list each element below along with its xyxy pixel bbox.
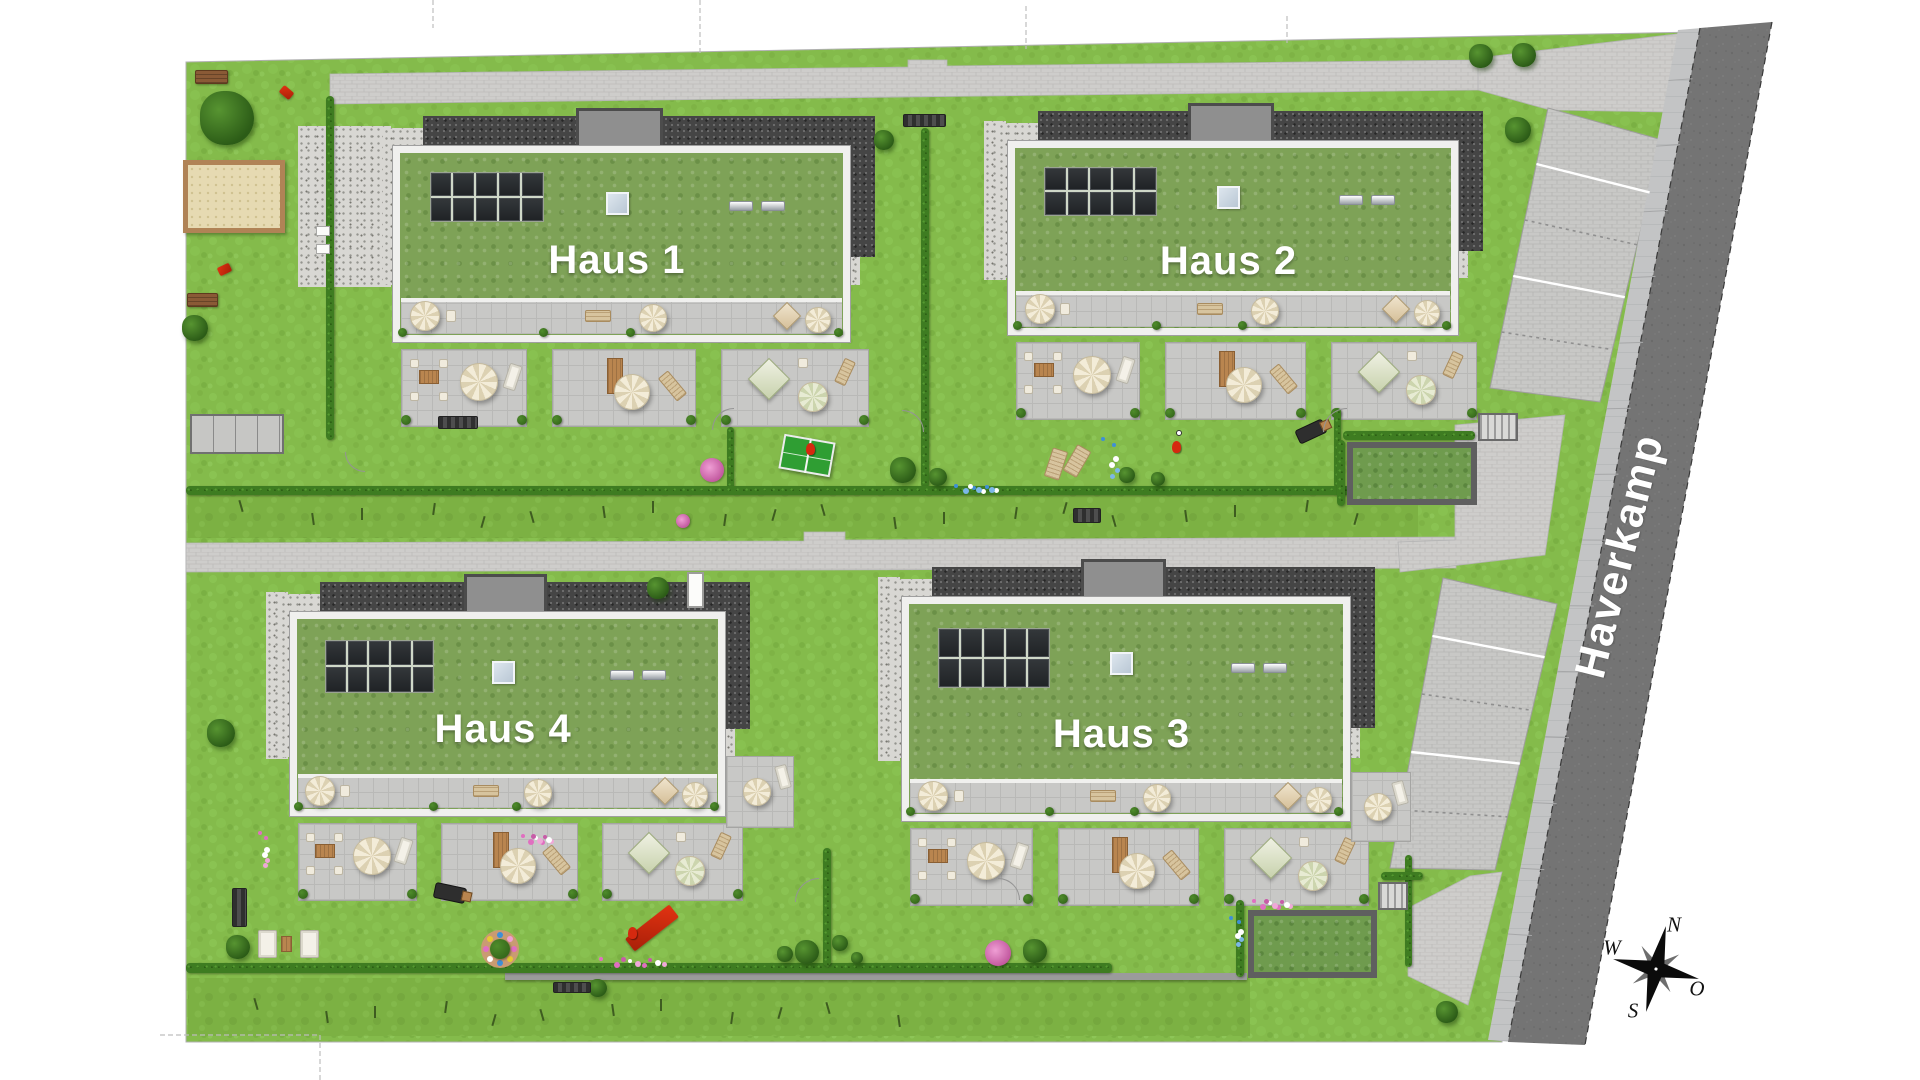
parasol-icon xyxy=(805,307,831,333)
bench xyxy=(1073,508,1101,523)
sapling-icon xyxy=(730,1012,734,1024)
sapling-icon xyxy=(529,511,534,523)
tree-icon xyxy=(890,457,916,483)
flower-icon xyxy=(1115,468,1120,473)
roof-vent xyxy=(642,670,666,680)
hedge xyxy=(921,128,929,488)
sandbox xyxy=(183,160,285,233)
flower-icon xyxy=(989,487,995,493)
toy-icon xyxy=(279,85,295,100)
tree-icon xyxy=(795,940,819,964)
flower-icon xyxy=(1284,902,1290,908)
chair-icon xyxy=(410,359,419,368)
table-icon xyxy=(928,849,948,863)
flower-icon xyxy=(507,956,513,962)
shrub-icon xyxy=(1023,894,1033,904)
gate-swing-arc xyxy=(1323,408,1347,432)
flower-bed xyxy=(257,826,266,874)
chair-icon xyxy=(1024,352,1033,361)
sapling-icon xyxy=(238,500,243,512)
tree-icon xyxy=(1469,44,1493,68)
flower-icon xyxy=(985,485,989,489)
sapling-icon xyxy=(1111,515,1116,527)
bench xyxy=(553,982,591,993)
house-gravel-band-right xyxy=(726,582,750,729)
chair-icon xyxy=(1299,837,1309,847)
roof-vent xyxy=(729,201,753,211)
parasol-icon xyxy=(675,856,705,886)
compass-south-label: S xyxy=(1628,999,1639,1024)
house-label: Haus 1 xyxy=(548,240,685,280)
flower-icon xyxy=(954,484,958,488)
sapling-icon xyxy=(602,506,606,518)
tree-icon xyxy=(929,468,947,486)
flower-icon xyxy=(265,858,270,863)
flower-icon xyxy=(511,946,517,952)
house-gravel-band-right xyxy=(1459,111,1483,251)
flower-icon xyxy=(1112,443,1116,447)
person-icon xyxy=(628,927,637,939)
hedge xyxy=(1343,431,1475,440)
flower-icon xyxy=(1109,462,1115,468)
house-gravel-band-right xyxy=(1351,567,1375,728)
flower-icon xyxy=(483,946,489,952)
gate-swing-arc xyxy=(795,878,819,902)
shrub-icon xyxy=(1016,408,1026,418)
lounger-icon xyxy=(258,930,277,958)
stairs xyxy=(1378,882,1408,910)
bin-shelter xyxy=(1248,910,1377,978)
flower-icon xyxy=(521,834,525,838)
lounger-icon xyxy=(300,930,319,958)
shrub-icon xyxy=(626,328,635,337)
chair-icon xyxy=(798,358,808,368)
sapling-icon xyxy=(325,1011,329,1023)
sapling-icon xyxy=(311,513,315,525)
chair-icon xyxy=(1060,303,1070,315)
tree-icon xyxy=(1436,1001,1458,1023)
flower-icon xyxy=(264,836,268,840)
garden-wall xyxy=(505,973,1247,980)
compass-west-label: W xyxy=(1603,936,1621,961)
chair-icon xyxy=(1407,351,1417,361)
sapling-icon xyxy=(1184,510,1188,522)
chair-icon xyxy=(1053,385,1062,394)
bench xyxy=(438,416,478,429)
bench xyxy=(903,114,946,127)
shrub-icon xyxy=(1296,408,1306,418)
flower-icon xyxy=(507,936,513,942)
sapling-icon xyxy=(1062,502,1067,514)
sapling-icon xyxy=(893,517,897,529)
tree-icon xyxy=(200,91,254,145)
parasol-icon xyxy=(1073,356,1111,394)
shrub-icon xyxy=(1224,894,1234,904)
sapling-icon xyxy=(480,516,485,528)
sapling-icon xyxy=(897,1015,901,1027)
hedge xyxy=(1381,872,1423,880)
sapling-icon xyxy=(539,1009,544,1021)
lounger-icon xyxy=(1063,444,1092,478)
shrub-icon xyxy=(1359,894,1369,904)
sapling-icon xyxy=(820,504,825,516)
parasol-icon xyxy=(614,374,650,410)
flower-icon xyxy=(1113,456,1119,462)
shrub-icon xyxy=(910,894,920,904)
sapling-icon xyxy=(943,512,945,524)
flower-icon xyxy=(263,863,268,868)
roof-skylight xyxy=(1217,186,1240,209)
shrub-icon xyxy=(1334,807,1343,816)
table-tennis xyxy=(778,434,835,477)
shrub-icon xyxy=(1238,321,1247,330)
flower-icon xyxy=(1229,916,1233,920)
roof-vent xyxy=(1231,663,1255,673)
table-icon xyxy=(1034,363,1054,377)
bench xyxy=(232,888,247,927)
house-label: Haus 4 xyxy=(435,709,572,749)
table-icon xyxy=(419,370,439,384)
shrub-icon xyxy=(1058,894,1068,904)
house-label: Haus 3 xyxy=(1053,714,1190,754)
compass-east-label: O xyxy=(1689,977,1704,1002)
bin-shelter xyxy=(1347,442,1477,505)
parasol-icon xyxy=(1414,300,1440,326)
compass-north-label: N xyxy=(1667,913,1681,938)
shrub-icon xyxy=(1045,807,1054,816)
sapling-icon xyxy=(1305,500,1309,512)
parasol-icon xyxy=(967,842,1005,880)
shrub-icon xyxy=(398,328,407,337)
shrub-icon xyxy=(906,807,915,816)
shrub-icon xyxy=(298,889,308,899)
tree-icon xyxy=(851,952,863,964)
tree-icon xyxy=(1023,939,1047,963)
roof-vent xyxy=(1339,195,1363,205)
chair-icon xyxy=(306,866,315,875)
sapling-icon xyxy=(1353,513,1358,525)
flower-bed xyxy=(950,483,998,491)
chair-icon xyxy=(446,310,456,322)
shrub-icon xyxy=(552,415,562,425)
person-icon xyxy=(806,443,815,455)
flower-bed xyxy=(1228,912,1240,950)
tree-icon xyxy=(832,935,848,951)
roof-vent xyxy=(1371,195,1395,205)
ball-icon xyxy=(1176,430,1182,436)
solar-panels-icon xyxy=(325,640,434,693)
chair-icon xyxy=(334,866,343,875)
sapling-icon xyxy=(491,1014,496,1026)
bike-stand xyxy=(316,244,330,254)
solar-panels-icon xyxy=(938,628,1050,688)
sapling-icon xyxy=(253,998,258,1010)
house-entrance-court xyxy=(298,126,391,287)
gate-swing-arc xyxy=(345,452,365,472)
tree-icon xyxy=(1119,467,1135,483)
hedge xyxy=(186,486,1422,495)
shrub-icon xyxy=(1165,408,1175,418)
flower-bush xyxy=(985,940,1011,966)
shrub-icon xyxy=(1189,894,1199,904)
utility-box xyxy=(687,572,704,608)
parasol-icon xyxy=(460,363,498,401)
parasol-icon xyxy=(524,779,552,807)
tree-icon xyxy=(182,315,208,341)
table-icon xyxy=(315,844,335,858)
chair-icon xyxy=(334,833,343,842)
shrub-icon xyxy=(1013,321,1022,330)
roof-vent xyxy=(761,201,785,211)
tree-icon xyxy=(1505,117,1531,143)
sapling-icon xyxy=(1014,507,1018,519)
flower-icon xyxy=(599,957,603,961)
chair-icon xyxy=(947,871,956,880)
flower-bed xyxy=(518,833,552,842)
shrub-icon xyxy=(539,328,548,337)
flower-icon xyxy=(1101,437,1105,441)
parasol-icon xyxy=(410,301,440,331)
shrub-icon xyxy=(294,802,303,811)
bench xyxy=(195,70,228,84)
flower-icon xyxy=(635,961,641,967)
parasol-icon xyxy=(500,848,536,884)
tree-icon xyxy=(777,946,793,962)
chair-icon xyxy=(1024,385,1033,394)
bench xyxy=(187,293,218,307)
sapling-icon xyxy=(660,999,662,1011)
tree-icon xyxy=(1151,472,1165,486)
sapling-icon xyxy=(723,514,727,526)
roof-vent xyxy=(1263,663,1287,673)
shrub-icon xyxy=(1130,807,1139,816)
roof-skylight xyxy=(606,192,629,215)
house-label: Haus 2 xyxy=(1160,241,1297,281)
flower-icon xyxy=(1236,942,1241,947)
chair-icon xyxy=(410,392,419,401)
person-icon xyxy=(1172,441,1181,453)
sapling-icon xyxy=(1234,505,1236,517)
tree-icon xyxy=(874,130,894,150)
lounger-icon xyxy=(585,310,611,322)
flower-bed xyxy=(1100,432,1116,486)
chair-icon xyxy=(340,785,350,797)
shrub-icon xyxy=(834,328,843,337)
sapling-icon xyxy=(652,501,654,513)
hedge xyxy=(727,427,734,489)
sapling-icon xyxy=(825,1002,830,1014)
flower-icon xyxy=(528,839,534,845)
flower-icon xyxy=(648,958,652,962)
roof-skylight xyxy=(492,661,515,684)
flower-icon xyxy=(621,957,626,962)
bike-stand xyxy=(316,226,330,236)
flower-icon xyxy=(497,932,503,938)
toy-icon xyxy=(217,263,233,277)
flower-icon xyxy=(258,831,262,835)
solar-panels-icon xyxy=(430,172,544,222)
shrub-icon xyxy=(1130,408,1140,418)
flower-bush xyxy=(700,458,724,482)
chair-icon xyxy=(439,392,448,401)
sapling-icon xyxy=(444,1001,448,1013)
shrub-icon xyxy=(1442,321,1451,330)
parasol-icon xyxy=(1119,853,1155,889)
chair-icon xyxy=(954,790,964,802)
shrub-icon xyxy=(490,939,510,959)
chair-icon xyxy=(439,359,448,368)
parasol-icon xyxy=(1025,294,1055,324)
stairs xyxy=(1478,413,1518,441)
parasol-icon xyxy=(682,782,708,808)
house-gravel-band-right xyxy=(851,116,875,257)
shrub-icon xyxy=(686,415,696,425)
solar-panels-icon xyxy=(1044,167,1157,217)
flower-icon xyxy=(1280,900,1284,904)
flower-icon xyxy=(1235,933,1241,939)
tree-icon xyxy=(1512,43,1536,67)
hedge xyxy=(823,848,831,966)
shrub-icon xyxy=(710,802,719,811)
parasol-icon xyxy=(1306,787,1332,813)
chair-icon xyxy=(306,833,315,842)
flower-icon xyxy=(628,959,632,963)
chair-icon xyxy=(918,871,927,880)
flower-icon xyxy=(1237,920,1241,924)
bike-shelter xyxy=(190,414,284,454)
flower-icon xyxy=(487,956,493,962)
tree-icon xyxy=(207,719,235,747)
lounger-icon xyxy=(1090,790,1116,802)
shrub-icon xyxy=(517,415,527,425)
roof-vent xyxy=(610,670,634,680)
flower-bush xyxy=(676,514,690,528)
sapling-icon xyxy=(432,503,436,515)
sapling-icon xyxy=(361,508,363,520)
shrub-icon xyxy=(1467,408,1477,418)
flower-icon xyxy=(497,960,503,966)
roof-skylight xyxy=(1110,652,1133,675)
flower-bed xyxy=(593,956,669,965)
hedge xyxy=(1337,440,1345,506)
shrub-icon xyxy=(512,802,521,811)
parasol-icon xyxy=(353,837,391,875)
tree-icon xyxy=(589,979,607,997)
tree-icon xyxy=(647,577,669,599)
gate-swing-arc xyxy=(712,408,734,430)
flower-icon xyxy=(1110,474,1115,479)
sapling-icon xyxy=(777,1007,782,1019)
parasol-icon xyxy=(798,382,828,412)
hedge xyxy=(326,96,334,440)
sapling-icon xyxy=(771,509,776,521)
flower-bed xyxy=(1248,898,1292,907)
chair-icon xyxy=(1053,352,1062,361)
tree-icon xyxy=(226,935,250,959)
sapling-icon xyxy=(374,1006,376,1018)
parasol-icon xyxy=(1226,367,1262,403)
flower-icon xyxy=(642,963,647,968)
chair-icon xyxy=(676,832,686,842)
lounger-icon xyxy=(1197,303,1223,315)
shrub-icon xyxy=(1152,321,1161,330)
shrub-icon xyxy=(429,802,438,811)
parasol-icon xyxy=(1364,793,1392,821)
parasol-icon xyxy=(743,778,771,806)
sapling-icon xyxy=(611,1004,615,1016)
chair-icon xyxy=(947,838,956,847)
table-icon xyxy=(281,936,292,952)
flower-icon xyxy=(1252,899,1256,903)
flower-icon xyxy=(543,835,547,839)
parasol-icon xyxy=(1251,297,1279,325)
compass-star-icon xyxy=(1604,917,1708,1021)
lounger-icon xyxy=(473,785,499,797)
flower-icon xyxy=(968,484,973,489)
site-plan: Haus 1Haus 2Haus 3Haus 4 Haverkamp N W O… xyxy=(0,0,1920,1080)
chair-icon xyxy=(918,838,927,847)
